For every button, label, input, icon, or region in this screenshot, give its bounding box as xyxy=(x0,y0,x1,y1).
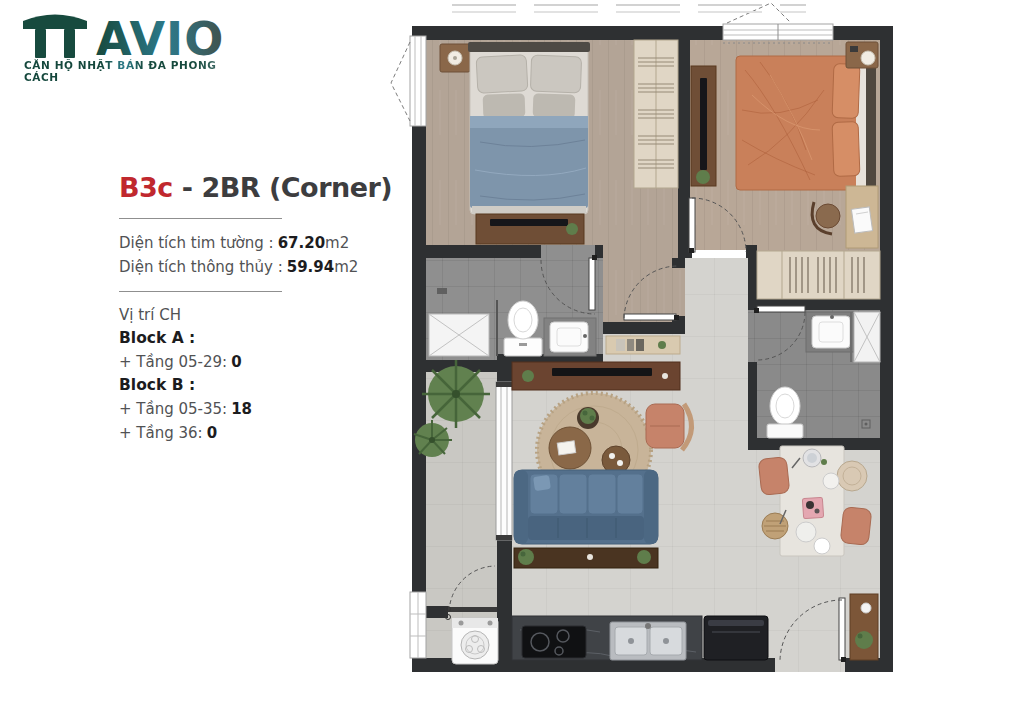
dining-chair xyxy=(837,461,867,491)
entry xyxy=(850,594,878,660)
page: { "brand": { "logo_text": "AVIO", "tagli… xyxy=(0,0,1024,709)
sofa xyxy=(514,470,658,544)
wall-shelf xyxy=(606,336,680,354)
wall-fixture xyxy=(437,288,447,294)
dining-chair xyxy=(840,507,872,546)
wardrobe-bedroom-2 xyxy=(757,251,880,299)
desk-bedroom-2 xyxy=(846,186,878,248)
laundry xyxy=(452,618,498,664)
balcony-sliding-door xyxy=(496,382,512,540)
laundry-window xyxy=(410,592,426,658)
double-bed-blue xyxy=(468,42,590,214)
tv-console-bedroom-2 xyxy=(691,66,716,186)
washing-machine xyxy=(452,618,498,664)
cooktop xyxy=(522,626,586,658)
refrigerator xyxy=(704,616,768,660)
tv-console-living xyxy=(512,362,680,390)
shower-tray xyxy=(429,314,489,356)
bedroom-2-window xyxy=(723,3,833,40)
dining-stool xyxy=(762,513,788,539)
kitchen xyxy=(512,616,768,660)
palm-plant-large xyxy=(422,360,490,428)
nightstand xyxy=(440,44,470,72)
entry-console xyxy=(850,594,878,660)
toilet-bathroom-2 xyxy=(767,387,803,438)
double-bed-orange xyxy=(736,54,876,194)
vanity-sink-bathroom-1 xyxy=(544,318,596,356)
dining-chair xyxy=(758,457,790,496)
floor-plan xyxy=(0,0,1024,709)
shower-bathroom-2 xyxy=(851,312,880,362)
bedroom-1-window xyxy=(391,36,426,126)
kitchen-sink xyxy=(610,622,686,660)
wardrobe-bedroom-1 xyxy=(634,40,678,188)
nightstand-bedroom-2 xyxy=(846,42,878,68)
vanity-sink-bathroom-2 xyxy=(806,312,854,352)
console-behind-sofa xyxy=(514,548,658,568)
tv-console-bedroom-1 xyxy=(476,214,584,244)
